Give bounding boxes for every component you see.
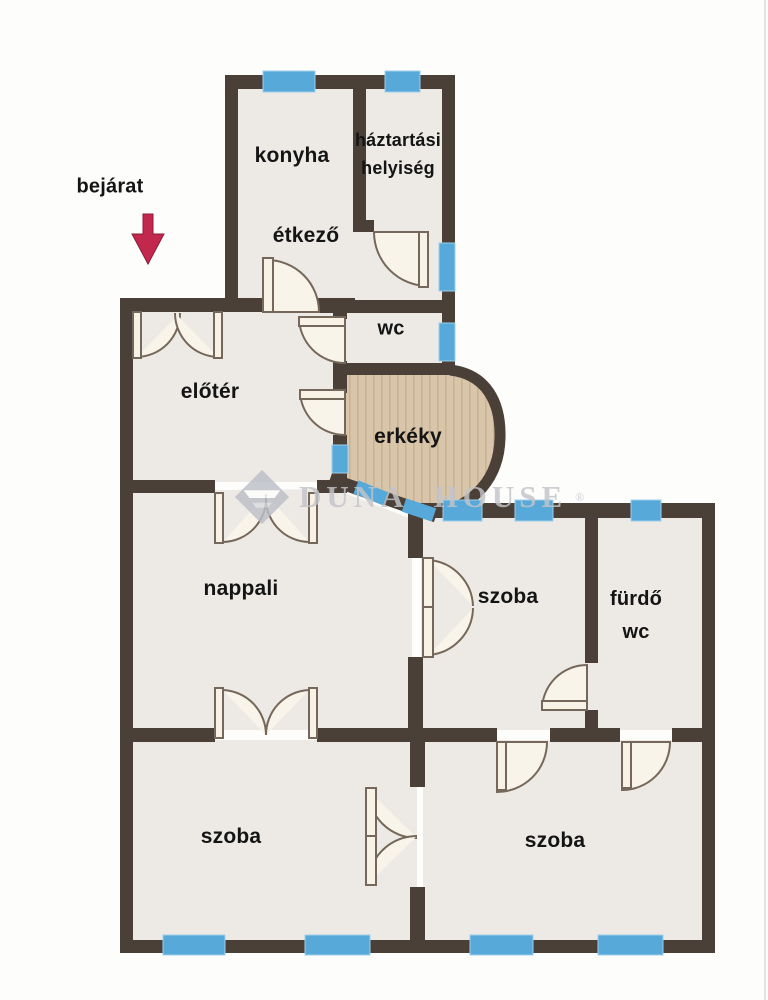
window-szoba-jobb-a-icon xyxy=(470,935,533,955)
window-szoba-bal-a-icon xyxy=(163,935,225,955)
room-label-wc: wc xyxy=(377,318,404,341)
window-szoba-kozep-b-icon xyxy=(515,500,553,521)
window-szoba-kozep-a-icon xyxy=(443,500,482,521)
room-label-konyha: konyha xyxy=(255,144,330,168)
window-furdo-icon xyxy=(631,500,661,521)
window-wc-icon xyxy=(439,323,455,361)
floor-plan: bejárat konyha háztartási helyiség étkez… xyxy=(0,0,768,1000)
room-label-nappali: nappali xyxy=(204,577,279,601)
room-label-haztartasi-line1: háztartási xyxy=(355,126,441,154)
window-folyoso-icon xyxy=(439,243,455,291)
window-szoba-bal-b-icon xyxy=(305,935,370,955)
room-label-eloter: előtér xyxy=(181,380,239,404)
room-label-furdo-line2: wc xyxy=(610,616,662,649)
window-haztartasi-icon xyxy=(385,71,420,92)
room-label-furdo: fürdő wc xyxy=(610,583,662,649)
room-label-szoba-kozep: szoba xyxy=(478,585,539,609)
room-label-erkely: erkéky xyxy=(374,425,442,449)
room-label-haztartasi-line2: helyiség xyxy=(355,154,441,182)
room-label-etkezo: étkező xyxy=(273,224,340,248)
window-konyha-icon xyxy=(263,71,315,92)
room-label-haztartasi: háztartási helyiség xyxy=(355,126,441,182)
room-label-szoba-jobb: szoba xyxy=(525,829,586,853)
room-label-furdo-line1: fürdő xyxy=(610,583,662,616)
entrance-label: bejárat xyxy=(77,176,144,199)
window-szoba-jobb-b-icon xyxy=(598,935,663,955)
window-erkely-diag-b-icon xyxy=(404,505,434,515)
entrance-arrow-icon xyxy=(132,214,164,264)
window-eloter-erkely-icon xyxy=(332,445,348,473)
room-label-szoba-bal: szoba xyxy=(201,825,262,849)
image-edge-line xyxy=(764,0,766,1000)
room-nappali-floor xyxy=(131,489,412,730)
